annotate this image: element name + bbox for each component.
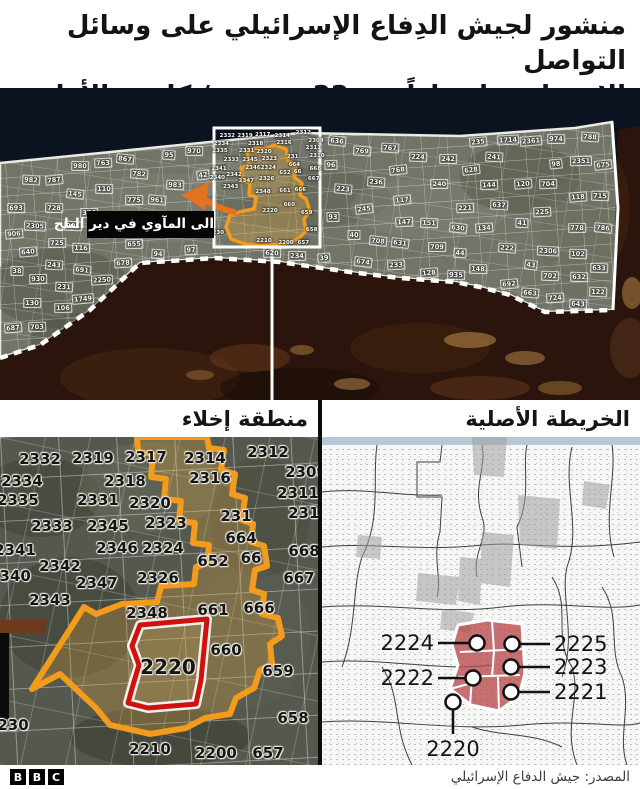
inset-zone-number: 230	[213, 230, 224, 236]
source-credit: المصدر: جيش الدفاع الإسرائيلي	[451, 769, 630, 785]
block-number-label: 231	[220, 507, 251, 525]
block-number-label: 2309	[285, 463, 318, 481]
block-number-label: 2348	[126, 604, 168, 622]
inset-zone-number: 2347	[239, 178, 254, 184]
inset-zone-number: 664	[289, 162, 300, 168]
headline: منشور لجيش الدِفاع الإسرائيلي على وسائل …	[0, 0, 640, 88]
bbc-logo-block-b2: B	[29, 769, 45, 785]
bbc-logo-block-c: C	[48, 769, 64, 785]
inset-zone-number: 2332	[220, 133, 235, 139]
inset-zone-number: 2334	[214, 141, 229, 147]
inset-zone-number: 2345	[242, 157, 257, 163]
footer: B B C المصدر: جيش الدفاع الإسرائيلي	[0, 765, 640, 789]
bbc-gaza-evacuation-graphic: منشور لجيش الدِفاع الإسرائيلي على وسائل …	[0, 0, 640, 789]
inset-zone-number: 668	[310, 166, 321, 172]
evacuation-zone-panel: منطقة إخلاء	[0, 400, 318, 765]
inset-zone-number: 2312	[296, 130, 311, 136]
inset-zone-number: 2220	[262, 208, 277, 214]
block-number-label: 2324	[142, 539, 184, 557]
callout-label: 2224	[381, 631, 434, 655]
block-number-label: 2200	[195, 744, 237, 762]
block-number-label: 668	[288, 542, 318, 560]
block-number-label: 2335	[0, 491, 39, 509]
callout-label: 2220	[426, 737, 479, 761]
inset-zone-number: 2331	[239, 148, 254, 154]
block-number-label: 2314	[184, 449, 226, 467]
inset-zone-number: 2348	[255, 189, 270, 195]
block-number-label: 2333	[31, 517, 73, 535]
block-number-label: 664	[225, 529, 256, 547]
block-number-label: 2343	[29, 591, 71, 609]
inset-zone-number: 658	[306, 227, 317, 233]
block-number-label: 2326	[137, 569, 179, 587]
inset-zone-number: 660	[284, 202, 295, 208]
block-number-label: 657	[252, 744, 283, 762]
inset-zone-number: 2342	[226, 172, 241, 178]
headline-line1: منشور لجيش الدِفاع الإسرائيلي على وسائل …	[10, 9, 626, 79]
inset-zone-number: 657	[298, 240, 309, 246]
inset-zone-number: 2343	[223, 184, 238, 190]
block-number-label: 2323	[145, 514, 187, 532]
inset-zone-number: 66	[294, 169, 302, 175]
block-number-label: 2332	[19, 450, 61, 468]
block-number-label: 2319	[72, 449, 114, 467]
block-number-label: 2318	[104, 472, 146, 490]
inset-zone-number: 2324	[261, 165, 276, 171]
inset-zone-number: 2326	[259, 176, 274, 182]
right-panel-title: الخريطة الأصلية	[322, 400, 640, 437]
block-number-label: 2210	[129, 740, 171, 758]
inset-zone-number: 2320	[256, 149, 271, 155]
block-number-label: 652	[197, 552, 228, 570]
evacuation-destination-label: الى المآوي في دير البلح	[87, 211, 214, 238]
block-number-callouts: 222422252223222222212220	[322, 437, 640, 765]
inset-zone-number-layer: 2332231923172314231223342318231623092335…	[0, 88, 640, 400]
block-number-label: 2341	[0, 541, 36, 559]
inset-zone-number: 2323	[262, 156, 277, 162]
bbc-logo: B B C	[10, 769, 64, 785]
block-number-label: 658	[277, 709, 308, 727]
block-number-label: 661	[197, 601, 228, 619]
block-number-label: 2340	[0, 567, 31, 585]
inset-zone-number: 666	[295, 187, 306, 193]
inset-zone-number: 2340	[210, 175, 225, 181]
block-number-label: 660	[210, 641, 241, 659]
inset-zone-number: 667	[308, 176, 319, 182]
inset-zone-number: 2318	[248, 141, 263, 147]
inset-zone-number: 661	[279, 188, 290, 194]
block-number-label: 2311	[277, 484, 318, 502]
inset-zone-number: 2335	[212, 148, 227, 154]
block-number-label: 230	[0, 716, 29, 734]
evacuation-zone-map: 2332231923172314231223342318231623092335…	[0, 437, 318, 765]
inset-zone-number: 2346	[245, 165, 260, 171]
inset-zone-number: 2316	[276, 140, 291, 146]
block-number-label: 2316	[189, 469, 231, 487]
block-number-label: 667	[283, 569, 314, 587]
callout-label: 2221	[554, 680, 607, 704]
block-number-label: 2320	[129, 494, 171, 512]
block-number-label: 2334	[1, 472, 43, 490]
inset-zone-number: 659	[301, 210, 312, 216]
block-number-label: 2317	[125, 448, 167, 466]
inset-zone-number: 2210	[256, 238, 271, 244]
block-number-label: 2331	[77, 491, 119, 509]
block-number-label: 2312	[247, 443, 289, 461]
block-number-label: 659	[262, 662, 293, 680]
inset-zone-number: 231	[287, 154, 298, 160]
left-panel-title: منطقة إخلاء	[0, 400, 318, 437]
inset-zone-number: 2333	[224, 157, 239, 163]
main-satellite-map: 9394959697981101021061221181171164344414…	[0, 88, 640, 400]
block-number-label: 2310	[288, 504, 318, 522]
block-number-label: 2345	[87, 517, 129, 535]
inset-zone-number: 2311	[306, 145, 321, 151]
callout-label: 2223	[554, 655, 607, 679]
callout-label: 2225	[554, 632, 607, 656]
inset-zone-number: 2310	[309, 153, 324, 159]
callout-label: 2222	[381, 666, 434, 690]
comparison-panels: منطقة إخلاء	[0, 400, 640, 765]
block-number-label: 2342	[39, 557, 81, 575]
inset-zone-number: 2314	[275, 133, 290, 139]
left-zone-labels: 2332231923172314231223342318231623092335…	[0, 437, 318, 765]
block-number-label: 2346	[96, 539, 138, 557]
inset-zone-number: 2309	[308, 138, 323, 144]
original-map-panel: الخريطة الأصلية	[322, 400, 640, 765]
inset-zone-number: 2341	[211, 166, 226, 172]
block-number-label: 66	[241, 549, 262, 567]
block-number-label: 2347	[76, 574, 118, 592]
bbc-logo-block-b1: B	[10, 769, 26, 785]
inset-zone-number: 2319	[237, 133, 252, 139]
original-map: 222422252223222222212220	[322, 437, 640, 765]
inset-zone-number: 2317	[255, 132, 270, 138]
inset-zone-number: 2200	[278, 240, 293, 246]
highlighted-zone-label: 2220	[140, 655, 196, 679]
block-number-label: 666	[243, 599, 274, 617]
inset-zone-number: 652	[279, 170, 290, 176]
